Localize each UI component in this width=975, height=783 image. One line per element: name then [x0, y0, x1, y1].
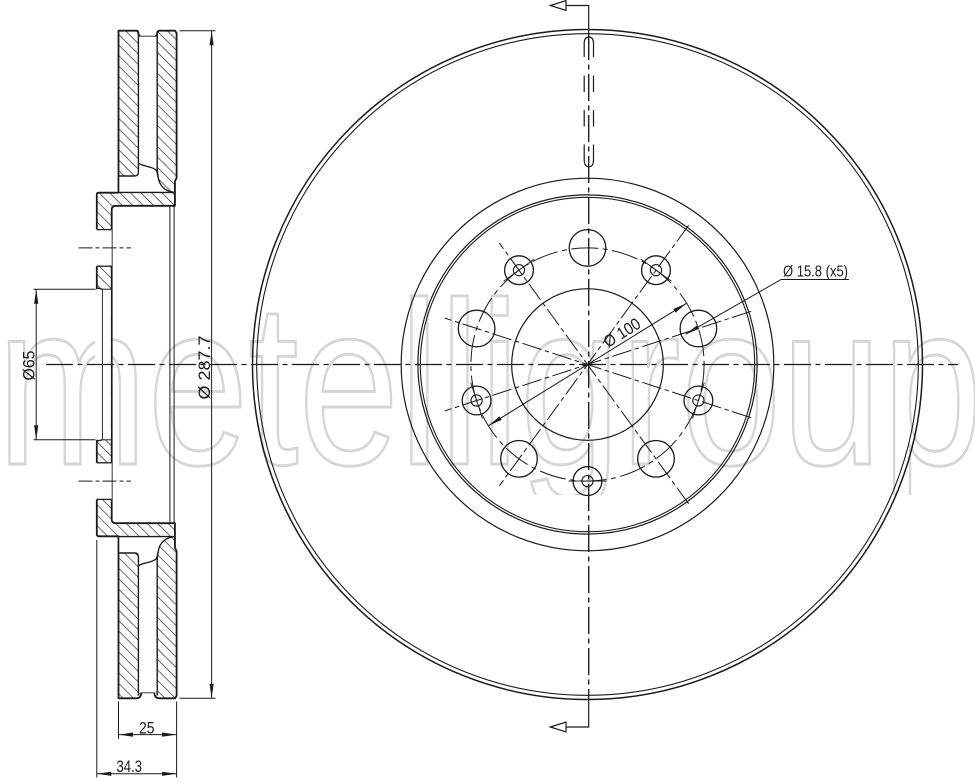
svg-text:34.3: 34.3 — [117, 758, 143, 776]
svg-text:25: 25 — [139, 719, 155, 737]
svg-text:Ø 15.8 (x5): Ø 15.8 (x5) — [783, 264, 848, 281]
svg-text:Ø65: Ø65 — [21, 351, 39, 381]
svg-text:Ø 287.7: Ø 287.7 — [196, 336, 214, 400]
svg-text:metelligroup: metelligroup — [0, 255, 975, 514]
